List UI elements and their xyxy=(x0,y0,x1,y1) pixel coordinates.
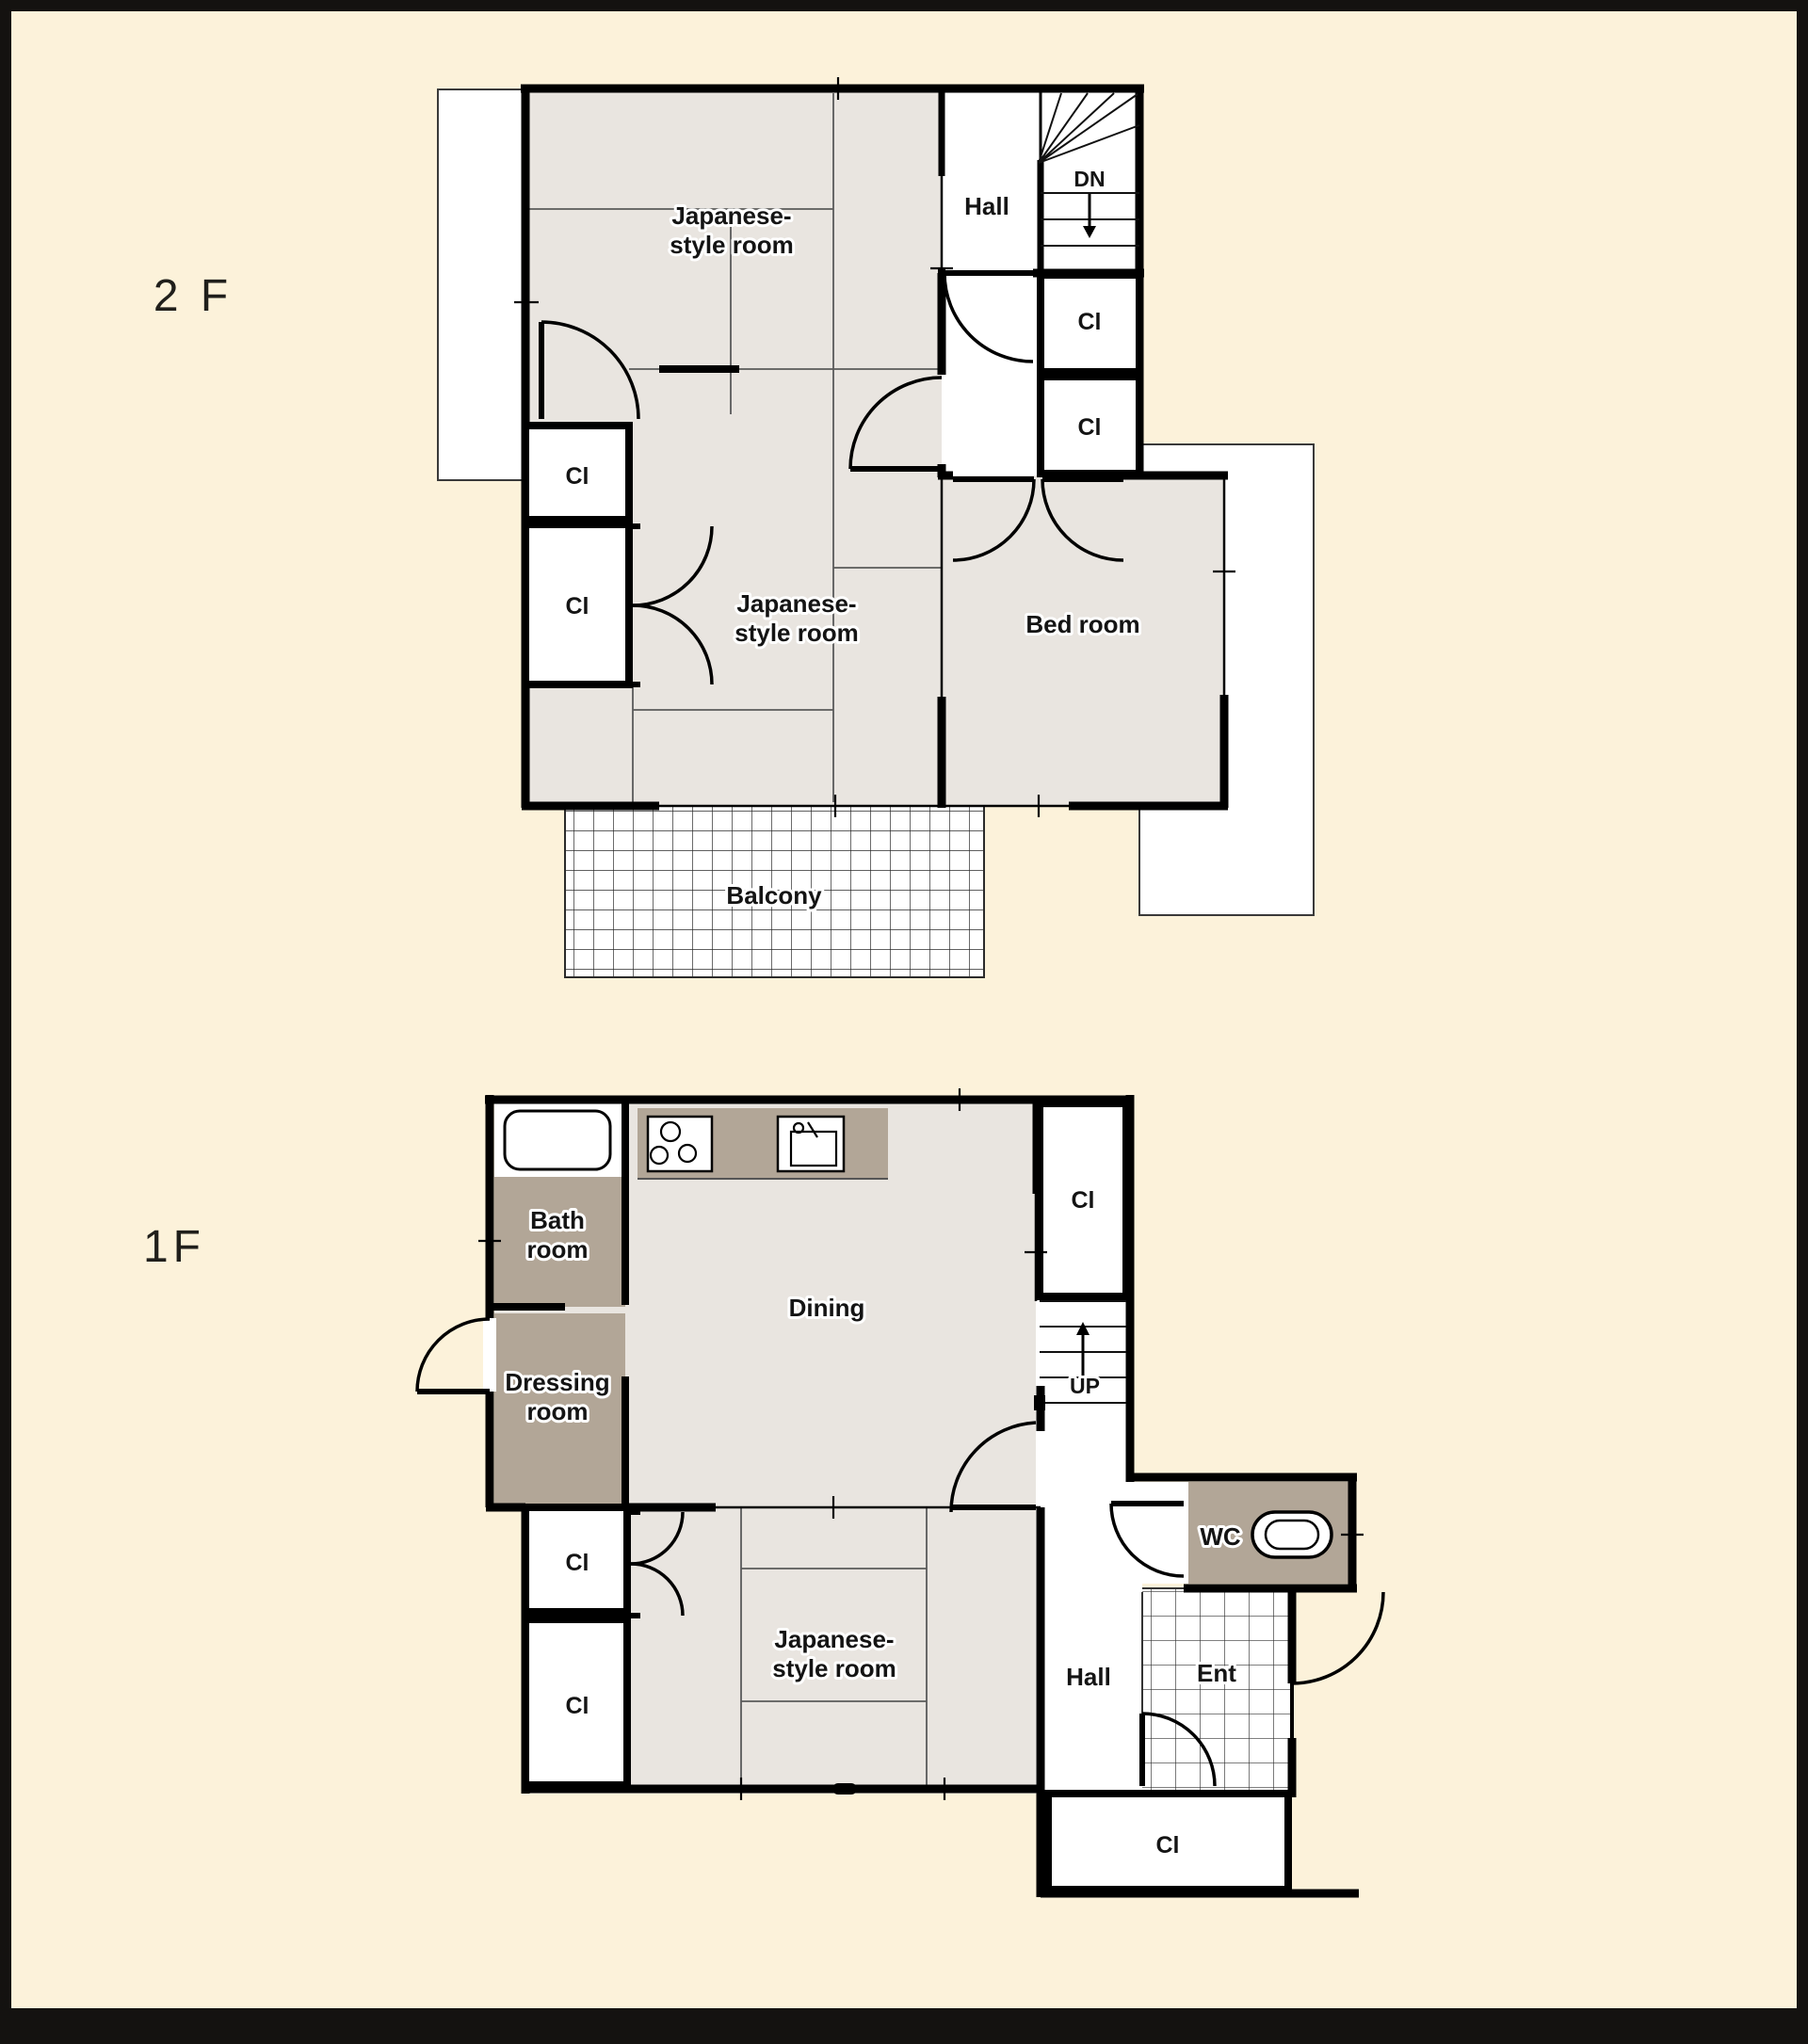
label-closet-2f-left-upper: Cl xyxy=(566,463,589,490)
label-closet-1f-left-lower: Cl xyxy=(566,1693,589,1719)
room-bed-room xyxy=(942,475,1224,806)
label-japanese-room-2f-north: Japanese-style room xyxy=(670,201,794,259)
label-closet-2f-right-lower: Cl xyxy=(1078,414,1102,441)
label-floor-1f: 1F xyxy=(143,1222,205,1272)
label-dining: Dining xyxy=(789,1294,865,1322)
label-closet-2f-left-lower: Cl xyxy=(566,593,589,620)
lower-floor-outline-left xyxy=(438,89,525,480)
label-floor-2f: 2 F xyxy=(153,271,233,321)
label-bath-room: Bathroom xyxy=(527,1206,589,1263)
label-balcony: Balcony xyxy=(726,881,822,909)
entrance-tile-area xyxy=(1142,1588,1292,1794)
stove-icon xyxy=(648,1117,712,1171)
toilet-icon xyxy=(1252,1512,1332,1557)
label-hall-2f: Hall xyxy=(964,192,1009,220)
label-wc: WC xyxy=(1200,1522,1241,1551)
label-japanese-room-2f-south: Japanese-style room xyxy=(734,589,859,647)
label-closet-1f-left-upper: Cl xyxy=(566,1550,589,1576)
label-stairs-dn: DN xyxy=(1073,167,1105,191)
label-closet-1f-bottom: Cl xyxy=(1156,1832,1180,1859)
label-ent: Ent xyxy=(1197,1659,1236,1687)
corridor-2f xyxy=(942,273,1041,475)
label-closet-2f-under-stairs: Cl xyxy=(1078,309,1102,335)
label-japanese-room-1f: Japanese-style room xyxy=(772,1625,896,1682)
door-stop-nub xyxy=(832,1783,857,1795)
floor-plan-image: 2 FJapanese-style roomHallDNClClClClJapa… xyxy=(0,0,1808,2044)
wc-alcove xyxy=(1036,1482,1188,1584)
label-closet-1f-right: Cl xyxy=(1072,1187,1095,1214)
bathtub-icon xyxy=(505,1111,610,1169)
label-hall-1f: Hall xyxy=(1066,1663,1111,1691)
sink-icon xyxy=(778,1117,844,1171)
label-bed-room: Bed room xyxy=(1025,610,1139,638)
label-stairs-up: UP xyxy=(1070,1374,1100,1398)
